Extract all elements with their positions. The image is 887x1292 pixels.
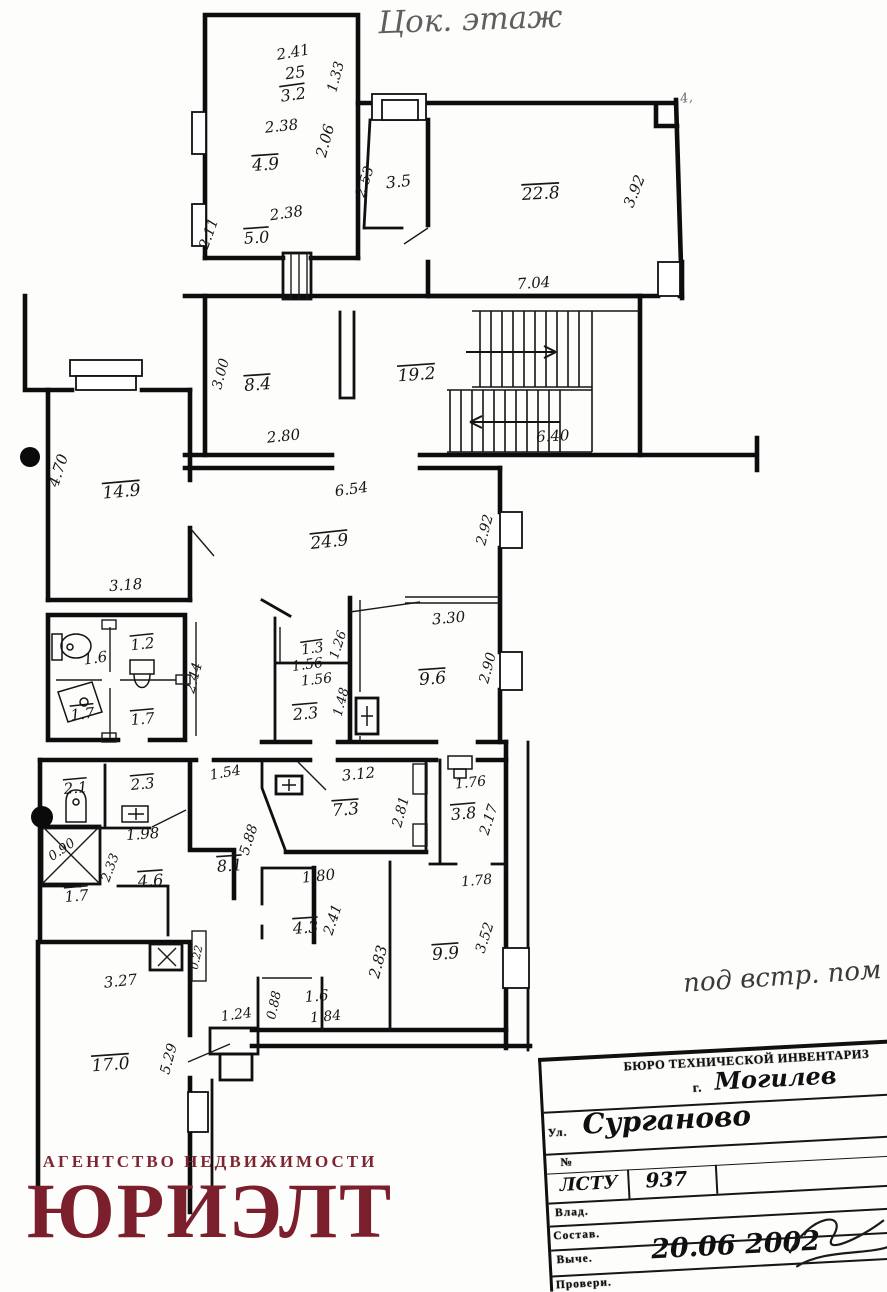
room-area-label: 4.9 <box>250 154 280 176</box>
stamp-series-label: ЛСТУ <box>559 1172 618 1196</box>
room-area-label: 14.9 <box>102 480 142 503</box>
room-area-label: 24.9 <box>309 530 350 554</box>
dimension-label: 6.54 <box>334 478 370 500</box>
dimension-label: 2.41 <box>320 902 345 938</box>
dimension-label: 3.5 <box>385 171 412 193</box>
room-area-label: 1.7 <box>70 704 96 724</box>
dimension-label: 1.98 <box>125 824 160 844</box>
dimension-label: 1.54 <box>209 762 242 783</box>
dimension-label: 3.18 <box>108 575 143 595</box>
room-area-label: 2.3 <box>129 774 155 794</box>
agency-logo: АГЕНТСТВО НЕДВИЖИМОСТИ ЮРИЭЛТ <box>0 1152 420 1250</box>
dimension-label: 1.33 <box>324 60 348 94</box>
stamp-series-value: 937 <box>645 1166 688 1192</box>
room-area-label: 7.3 <box>331 799 359 821</box>
dimension-label: 1.56 <box>300 670 333 689</box>
room-area-label: 3.8 <box>450 803 477 824</box>
dimension-label: 1.6 <box>82 647 109 668</box>
bti-stamp: БЮРО ТЕХНИЧЕСКОЙ ИНВЕНТАРИЗ г. Могилев У… <box>538 1039 887 1291</box>
dimension-label: 0.90 <box>46 836 78 865</box>
dimension-label: 4, <box>678 90 694 107</box>
dimension-label: 0.88 <box>264 990 285 1021</box>
room-area-label: 19.2 <box>397 364 436 387</box>
stamp-owner-label: Влад. <box>555 1206 589 1220</box>
dimension-label: 3.00 <box>209 357 233 391</box>
room-area-label: 1.2 <box>130 634 156 654</box>
dimension-label: 25 <box>283 62 307 84</box>
stamp-checked-label: Провери. <box>556 1276 613 1291</box>
room-area-label: 2.3 <box>291 703 319 724</box>
room-area-label: 8.4 <box>243 374 271 396</box>
agency-name: ЮРИЭЛТ <box>0 1172 420 1250</box>
toilet-icon <box>448 756 472 769</box>
dimension-label: 5.29 <box>157 1042 181 1076</box>
wall-dot <box>31 806 53 828</box>
wall-dot <box>20 447 40 467</box>
dimension-label: 2.81 <box>389 795 413 830</box>
thin-details <box>42 228 500 1062</box>
dimension-label: 1.84 <box>309 1008 341 1027</box>
room-area-label: 22.8 <box>520 183 560 205</box>
dimension-label: 7.04 <box>516 273 551 293</box>
dimension-label: 2.17 <box>476 802 501 838</box>
dimension-label: 3.52 <box>473 920 498 955</box>
stamp-compiled-label: Состав. <box>553 1228 600 1242</box>
stamp-city-prefix: г. <box>692 1079 703 1095</box>
room-area-label: 1.7 <box>64 886 90 906</box>
room-area-label: 9.6 <box>418 668 447 690</box>
scanned-floor-plan-page: { "annotations": { "floor_note": "Цок. э… <box>0 0 887 1280</box>
signature-flourish <box>779 1203 887 1279</box>
outer-walls <box>25 15 757 1228</box>
dimension-label: 1.80 <box>301 865 337 886</box>
dimension-label: 2.41 <box>274 40 311 64</box>
room-area-label: 1.7 <box>130 709 156 729</box>
dimension-label: 3.27 <box>103 970 139 991</box>
plumbing-fixtures <box>52 634 472 822</box>
dimension-label: 3.12 <box>341 763 376 784</box>
dimension-label: 2.38 <box>268 202 305 225</box>
dimension-label: 2.38 <box>263 115 299 136</box>
room-area-label: 5.0 <box>243 227 270 248</box>
dimension-label: 2.06 <box>312 122 338 160</box>
room-area-label: 4.3 <box>291 917 319 938</box>
floor-title-handwriting: Цок. этаж <box>377 0 563 41</box>
dimension-label: 2.33 <box>98 852 122 885</box>
room-area-label: 9.9 <box>431 943 460 965</box>
dimension-label: 3.30 <box>431 608 466 629</box>
dimension-label: 3.92 <box>620 172 649 210</box>
dimension-label: 1.76 <box>454 773 487 792</box>
dimension-label: 2.92 <box>473 513 497 548</box>
stamp-city-value: Могилев <box>714 1060 837 1095</box>
room-area-label: 2.1 <box>62 778 88 798</box>
stamp-street-value: Сурганово <box>582 1099 752 1141</box>
room-area-label: 4.6 <box>136 870 164 891</box>
dimension-label: 2.83 <box>365 943 391 981</box>
room-area-label: 8.1 <box>216 855 243 876</box>
stamp-number-label: № <box>560 1156 573 1169</box>
dimension-label: 1.26 <box>327 629 350 661</box>
dimension-label: 1.6 <box>304 986 330 1006</box>
dimension-label: 5.88 <box>237 822 262 857</box>
dimension-label: 1.78 <box>460 872 493 891</box>
stamp-drawn-label: Выче. <box>556 1252 593 1266</box>
toilet-icon <box>130 660 154 674</box>
room-area-label: 17.0 <box>91 1054 130 1077</box>
stamp-street-label: Ул. <box>548 1127 568 1140</box>
dimension-label: 2.90 <box>476 651 500 686</box>
dimension-label: 2.80 <box>265 425 302 447</box>
dimension-label: 6.40 <box>536 426 571 446</box>
plan-labels: 2.41253.21.332.384.92.062.385.02.112.533… <box>44 40 694 1076</box>
room-area-label: 3.2 <box>279 83 307 105</box>
dimension-label: 1.24 <box>220 1005 253 1025</box>
